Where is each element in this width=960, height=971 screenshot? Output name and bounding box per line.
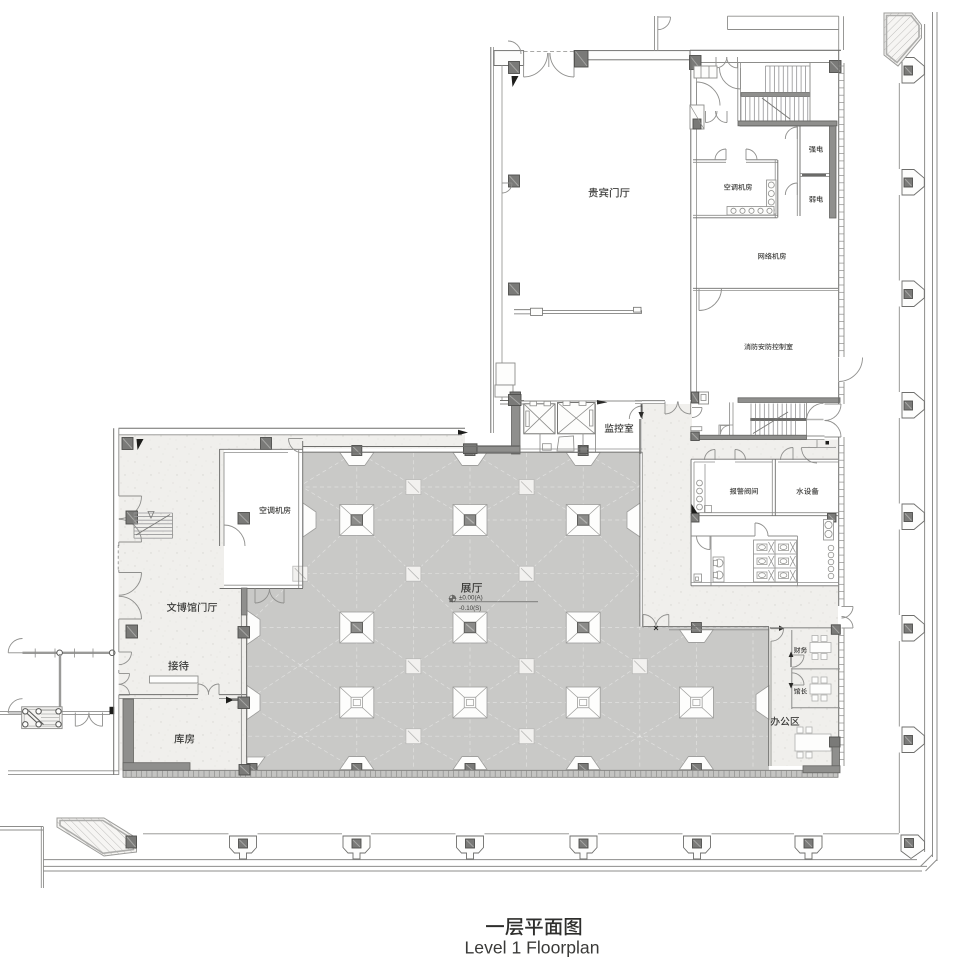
- svg-text:±0.00(A): ±0.00(A): [459, 595, 483, 602]
- svg-text:-0.10(S): -0.10(S): [459, 605, 481, 612]
- svg-text:Level 1 Floorplan: Level 1 Floorplan: [465, 938, 600, 958]
